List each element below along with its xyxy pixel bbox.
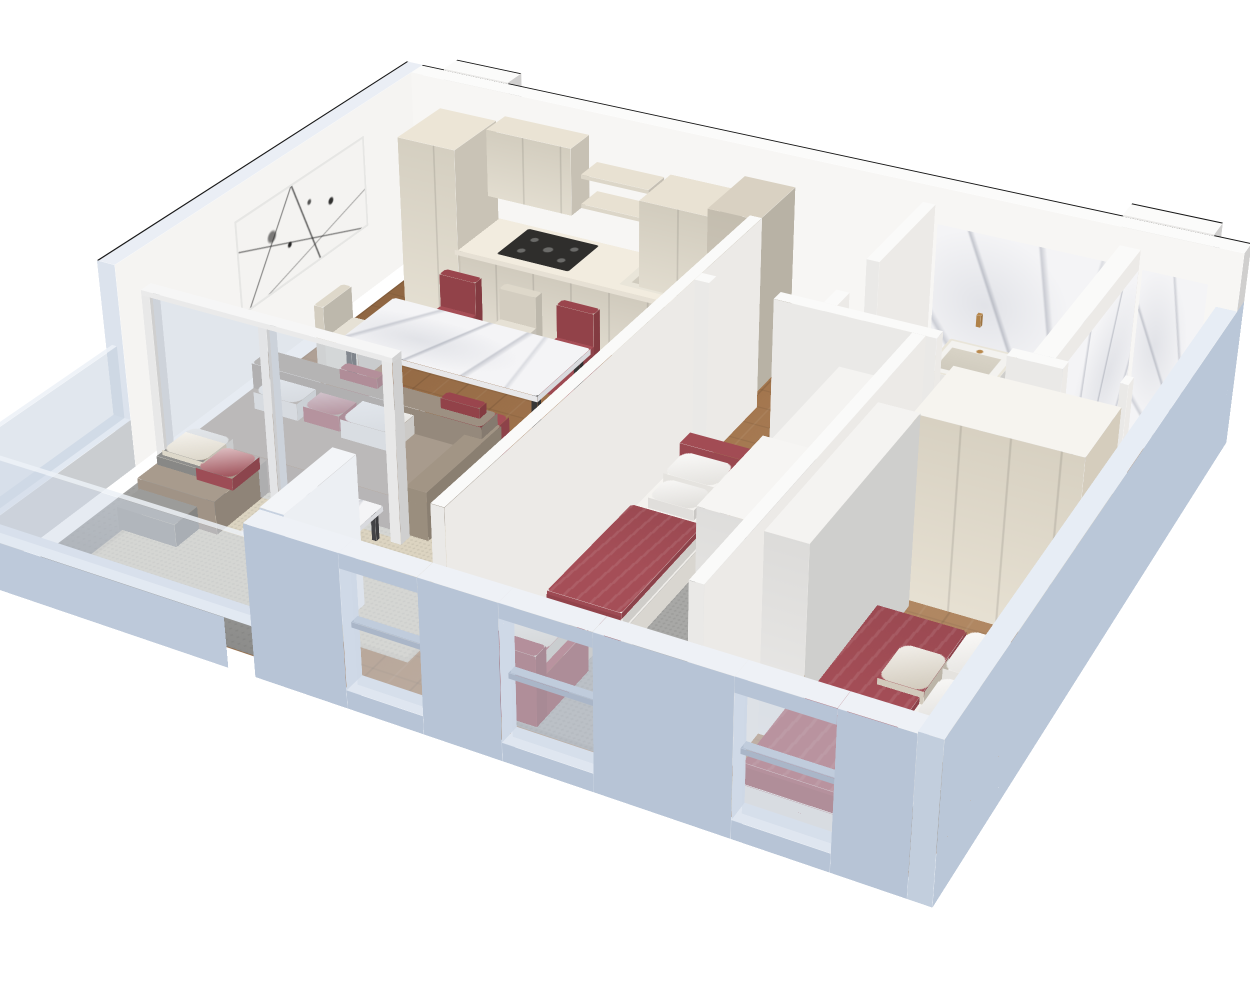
floor-plan	[0, 253, 1219, 908]
south-wall-seg-2-south	[417, 577, 503, 761]
apartment-3d-scene	[0, 0, 1250, 997]
south-wall-seg-4-south	[830, 708, 918, 899]
